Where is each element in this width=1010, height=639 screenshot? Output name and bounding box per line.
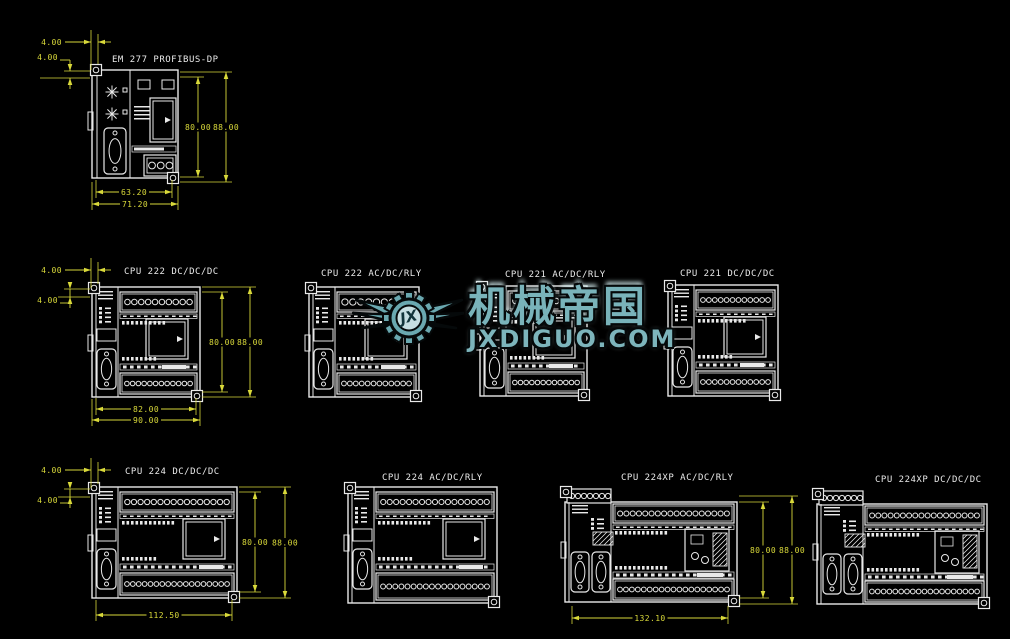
dim-arrow — [721, 616, 728, 621]
dimension-cpu224dc-80.00: 80.00 — [239, 492, 270, 592]
rect — [163, 521, 166, 525]
line — [719, 558, 727, 566]
rect — [894, 533, 897, 537]
rect — [355, 516, 358, 519]
rect — [105, 312, 111, 314]
terminal-screw — [928, 589, 933, 594]
dimension-cpu224xpac-132.10: 132.10 — [572, 606, 728, 624]
mounting-tab — [89, 483, 100, 494]
rect — [660, 566, 663, 570]
rect — [511, 365, 515, 368]
rect — [881, 533, 884, 537]
terminal-screw — [164, 499, 169, 504]
rect — [337, 292, 416, 312]
rect — [477, 516, 481, 518]
terminal-screw — [136, 582, 141, 587]
rect — [158, 316, 162, 318]
terminal-screw — [225, 582, 230, 587]
rect — [131, 321, 134, 325]
terminal-screw — [407, 381, 412, 386]
dimension-value: 4.00 — [41, 266, 62, 275]
terminal-screw — [876, 513, 881, 518]
led-row — [378, 521, 430, 525]
rect — [410, 521, 413, 525]
rect — [615, 581, 732, 598]
terminal-screw — [397, 299, 403, 305]
rect — [637, 574, 641, 577]
dim-arrow — [92, 418, 99, 423]
terminal-screw — [689, 587, 694, 592]
rect — [407, 566, 411, 569]
rect — [470, 516, 474, 518]
rect — [120, 492, 234, 512]
rect — [714, 527, 718, 529]
rect — [515, 356, 518, 360]
rect — [885, 568, 888, 572]
dim-arrow — [196, 77, 201, 84]
mounting-tab — [306, 283, 317, 294]
rect — [890, 568, 893, 572]
terminal-screw — [922, 589, 927, 594]
rect — [651, 566, 654, 570]
rect — [885, 533, 888, 537]
rect — [347, 366, 351, 369]
terminal-screw — [671, 587, 676, 592]
rect — [518, 365, 522, 368]
hatched-area — [593, 532, 613, 545]
rect — [528, 320, 531, 324]
terminal-screw — [962, 513, 967, 518]
terminal-screw — [931, 513, 936, 518]
terminal-screw — [405, 299, 411, 305]
rect — [908, 533, 911, 537]
rect — [959, 529, 963, 531]
terminal-screw — [553, 298, 558, 303]
dim-arrow — [193, 418, 200, 423]
db9-port — [571, 552, 589, 592]
rect — [136, 557, 139, 561]
rect — [620, 531, 623, 535]
rect — [591, 523, 594, 526]
terminal-screw — [224, 499, 229, 504]
rect — [361, 508, 367, 510]
polygon — [474, 536, 480, 542]
rect — [378, 521, 381, 525]
rect — [375, 366, 379, 369]
terminal-screw — [541, 380, 546, 385]
rect — [673, 327, 692, 339]
rect — [193, 516, 197, 518]
rect — [179, 316, 183, 318]
terminal-screw — [452, 499, 457, 504]
rect — [665, 574, 669, 577]
rect — [493, 320, 499, 322]
rect — [144, 516, 148, 518]
terminal-screw — [198, 499, 203, 504]
rect — [136, 357, 139, 361]
cad-canvas: EM 277 PROFIBUS-DPCPU 222 DC/DC/DCCPU 22… — [0, 0, 1010, 639]
dimension-value: 82.00 — [133, 405, 159, 414]
terminal-screw — [718, 511, 723, 516]
terminal-screw — [153, 381, 158, 386]
terminal-screw — [699, 511, 704, 516]
rect — [145, 521, 148, 525]
mounting-tab — [813, 489, 824, 500]
terminal-screw — [125, 299, 131, 305]
rect — [316, 316, 319, 319]
terminal-screw — [766, 298, 771, 303]
terminal-screw — [888, 513, 893, 518]
terminal-screw — [466, 584, 471, 589]
rect — [389, 316, 393, 318]
label-bar — [376, 514, 494, 519]
rect — [158, 566, 162, 569]
terminal-screw — [724, 298, 729, 303]
rect — [98, 498, 113, 499]
dimension-value: 4.00 — [41, 38, 62, 47]
rect — [410, 557, 413, 561]
rect — [728, 574, 732, 577]
terminal-screw — [881, 589, 886, 594]
terminal-screw — [142, 381, 147, 386]
cartridge-door — [365, 319, 407, 359]
dim-arrow — [98, 468, 105, 473]
rect — [849, 521, 856, 523]
rect — [315, 295, 330, 296]
terminal-screw — [154, 582, 159, 587]
rect — [613, 504, 734, 523]
rect — [734, 314, 738, 316]
mounting-tab — [192, 391, 203, 402]
rect — [924, 529, 928, 531]
rect — [755, 314, 759, 316]
rect — [123, 316, 127, 318]
terminal-screw — [436, 584, 441, 589]
rect — [615, 506, 732, 521]
rect — [748, 314, 752, 316]
terminal-strip — [376, 573, 494, 600]
rect — [674, 293, 689, 294]
rect — [945, 529, 949, 531]
rect — [707, 319, 710, 323]
rect — [167, 521, 170, 525]
rect — [484, 516, 488, 518]
terminal-screw — [736, 380, 741, 385]
dimension-value: 4.00 — [41, 466, 62, 475]
line — [713, 533, 717, 537]
terminal-screw — [899, 589, 904, 594]
dim-arrow — [68, 78, 73, 85]
rect — [400, 566, 404, 569]
terminal-screw — [540, 298, 545, 303]
rect — [392, 557, 395, 561]
terminal-screw — [701, 587, 706, 592]
terminal-screw — [132, 299, 138, 305]
rect — [357, 321, 360, 325]
circle — [599, 555, 603, 559]
rect — [138, 80, 150, 89]
circle — [942, 555, 949, 562]
terminal-screw — [171, 381, 176, 386]
terminal-screw — [893, 589, 898, 594]
rect — [533, 356, 536, 360]
rect — [149, 557, 152, 561]
rect — [665, 531, 668, 535]
dim-arrow — [220, 292, 225, 299]
rect — [428, 566, 432, 569]
rect — [362, 321, 365, 325]
rect — [122, 494, 232, 510]
mounting-tab — [477, 282, 488, 293]
circle — [493, 351, 497, 355]
terminal-screw — [142, 582, 147, 587]
rect — [316, 312, 319, 315]
rect — [572, 512, 588, 513]
mounting-tab — [411, 391, 422, 402]
dimension-cpu222dc-4.00: 4.00 — [33, 282, 90, 308]
terminal-screw — [754, 380, 759, 385]
rect — [700, 527, 704, 529]
rect — [99, 521, 102, 524]
rect — [376, 573, 494, 600]
rect — [172, 516, 176, 518]
rect — [624, 566, 627, 570]
rect — [322, 317, 328, 319]
rect — [123, 566, 127, 569]
rect — [355, 507, 358, 510]
rect — [140, 357, 143, 361]
rect — [344, 357, 347, 361]
terminal-screw — [158, 499, 163, 504]
rect — [651, 531, 654, 535]
terminal-screw — [430, 584, 435, 589]
rect — [843, 525, 846, 528]
rect — [154, 357, 157, 361]
rect — [769, 314, 773, 316]
terminal-screw — [736, 298, 741, 303]
dim-arrow — [196, 170, 201, 177]
hatched-area — [963, 535, 977, 568]
rect — [123, 516, 127, 518]
terminal-screw — [423, 584, 428, 589]
dim-arrow — [224, 72, 229, 79]
rect — [693, 527, 697, 529]
rect — [938, 529, 942, 531]
rect — [681, 315, 687, 317]
terminal-screw — [870, 589, 875, 594]
terminal-screw — [176, 381, 181, 386]
terminal-strip — [337, 292, 416, 312]
model-label — [549, 364, 573, 368]
rect — [151, 566, 155, 569]
rect — [656, 531, 659, 535]
rect — [375, 316, 379, 318]
rect — [120, 573, 234, 595]
rect — [99, 507, 102, 510]
dimension-cpu224dc-112.50: 112.50 — [96, 600, 232, 621]
rect — [844, 554, 862, 594]
rect — [428, 516, 432, 518]
rect — [698, 355, 701, 359]
mounting-tab — [561, 487, 572, 498]
rect — [165, 566, 169, 569]
terminal-screw — [887, 589, 892, 594]
label-bar — [696, 312, 775, 317]
terminal-strip — [120, 373, 197, 394]
rect — [592, 552, 610, 592]
terminal-screw — [624, 511, 629, 516]
rect — [721, 319, 724, 323]
rect — [675, 319, 678, 322]
dim-arrow — [68, 64, 73, 71]
terminal-screw — [353, 381, 358, 386]
rect — [419, 521, 422, 525]
ellipse — [101, 358, 111, 380]
dim-arrow — [253, 492, 258, 499]
rect — [149, 357, 152, 361]
rect — [524, 320, 527, 324]
terminal-screw — [919, 513, 924, 518]
rect — [698, 373, 773, 391]
rect — [633, 531, 636, 535]
dimension-cpu222dc-80.00: 80.00 — [202, 292, 237, 392]
rect — [542, 356, 545, 360]
terminal-screw — [712, 380, 717, 385]
terminal-screw — [712, 511, 717, 516]
rect — [421, 516, 425, 518]
rect — [144, 566, 148, 569]
rect — [134, 118, 150, 120]
rect — [675, 310, 678, 313]
rect — [679, 527, 683, 529]
rect — [672, 574, 676, 577]
rect — [353, 529, 372, 541]
terminal-screw — [217, 499, 222, 504]
terminal-strip — [120, 492, 234, 512]
rect — [903, 529, 907, 531]
rect — [908, 568, 911, 572]
dim-arrow — [761, 502, 766, 509]
rect — [872, 533, 875, 537]
circle — [113, 167, 117, 171]
rect — [131, 357, 134, 361]
dim-arrow — [96, 190, 103, 195]
terminal-screw — [706, 511, 711, 516]
rect — [658, 527, 662, 529]
rect — [633, 566, 636, 570]
rect — [354, 491, 369, 492]
rect — [401, 557, 404, 561]
rect — [553, 315, 557, 317]
rect — [912, 533, 915, 537]
label-bar — [508, 313, 584, 318]
terminal-screw — [171, 499, 176, 504]
module-label-cpu224ac: CPU 224 AC/DC/RLY — [382, 473, 483, 483]
rect — [707, 527, 711, 529]
rect — [574, 315, 578, 317]
rect — [720, 314, 724, 316]
dim-arrow — [96, 613, 103, 618]
rect — [493, 316, 499, 318]
model-label — [697, 573, 723, 577]
rect — [698, 319, 701, 323]
terminal-screw — [417, 584, 422, 589]
rect — [99, 312, 102, 315]
terminal-strip — [337, 373, 416, 394]
rect — [361, 316, 365, 318]
terminal-strip — [508, 291, 584, 311]
rect — [849, 530, 856, 532]
rect — [567, 315, 571, 317]
rect — [179, 566, 183, 569]
rect — [172, 521, 175, 525]
rect — [721, 527, 725, 529]
rect — [387, 521, 390, 525]
rect — [917, 576, 921, 579]
mounting-tab — [89, 283, 100, 294]
terminal-screw — [348, 381, 353, 386]
module-label-cpu222dc: CPU 222 DC/DC/DC — [124, 267, 219, 277]
rect — [165, 316, 169, 318]
terminal-screw — [465, 499, 470, 504]
module-cpu222dc — [88, 283, 203, 402]
rect — [186, 516, 190, 518]
cartridge-door — [724, 317, 766, 357]
rect — [508, 372, 584, 393]
terminal-screw — [677, 587, 682, 592]
terminal-screw — [629, 587, 634, 592]
rect — [716, 355, 719, 359]
terminal-screw — [342, 381, 347, 386]
rect — [105, 517, 111, 519]
terminal-screw — [187, 299, 193, 305]
rect — [361, 517, 367, 519]
module-label-cpu222ac: CPU 222 AC/DC/RLY — [321, 269, 422, 279]
terminal-screw — [569, 380, 574, 385]
rect — [681, 319, 687, 321]
rect — [638, 566, 641, 570]
line — [593, 532, 597, 536]
cad-drawing-stage: EM 277 PROFIBUS-DPCPU 222 DC/DC/DCCPU 22… — [0, 0, 1010, 639]
label-bar — [337, 314, 416, 319]
terminal-screw — [393, 584, 398, 589]
rect — [896, 529, 900, 531]
rect — [322, 312, 328, 314]
terminal-screw — [350, 299, 356, 305]
rect — [396, 316, 400, 318]
terminal-screw — [875, 589, 880, 594]
rect — [120, 373, 197, 394]
rect — [105, 317, 111, 319]
terminal-screw — [148, 381, 153, 386]
rect — [623, 574, 627, 577]
rect — [629, 566, 632, 570]
circle — [681, 350, 685, 354]
dimension-em277-80.00: 80.00 — [180, 77, 213, 177]
dimension-value: 80.00 — [750, 546, 776, 555]
dimension-value: 4.00 — [37, 296, 58, 305]
ellipse — [848, 563, 858, 585]
rect — [642, 566, 645, 570]
rect — [903, 568, 906, 572]
terminal-screw — [219, 582, 224, 587]
rect — [525, 365, 529, 368]
terminal-screw — [159, 299, 165, 305]
rect — [899, 568, 902, 572]
terminal-strip — [120, 292, 197, 312]
rect — [674, 296, 689, 297]
rect — [716, 319, 719, 323]
